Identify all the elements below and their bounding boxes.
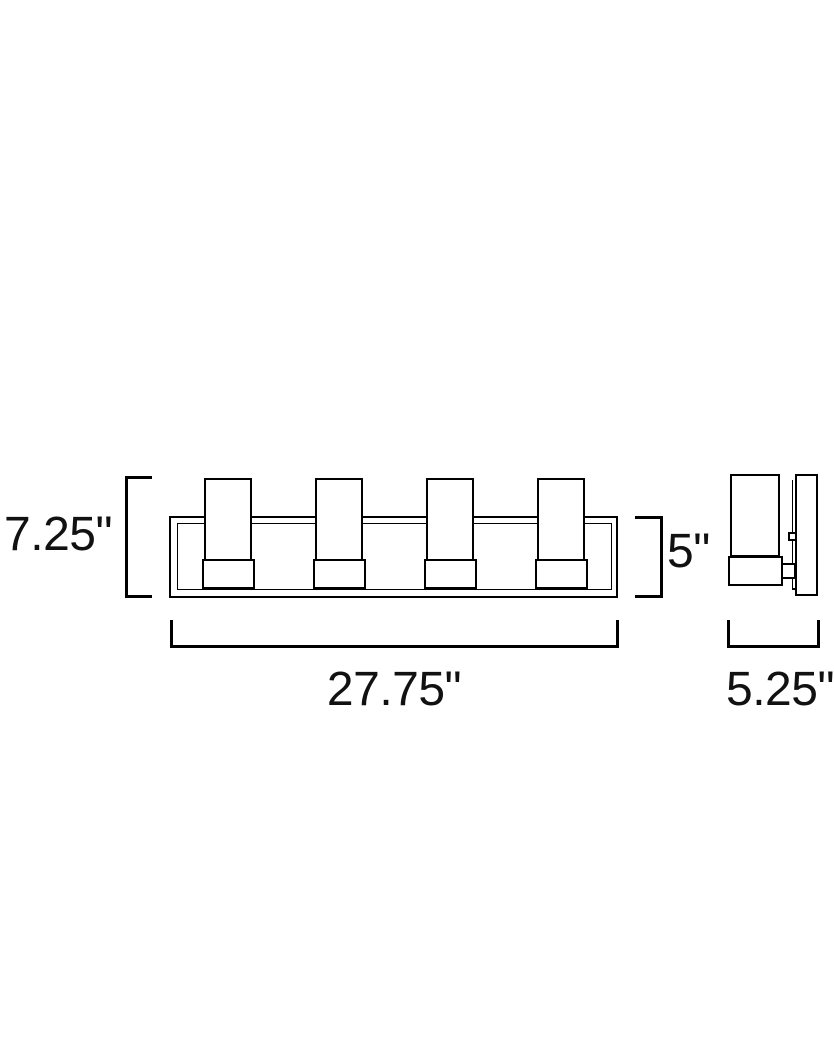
height-dimension-label: 7.25" xyxy=(0,511,112,559)
width-dimension-label: 27.75" xyxy=(294,666,494,714)
lamp-socket-2 xyxy=(313,559,366,589)
lamp-socket-3 xyxy=(424,559,477,589)
bracket-tick-top xyxy=(635,516,663,519)
lamp-shade-3 xyxy=(426,478,474,561)
bracket-vertical-line xyxy=(125,476,128,598)
bracket-tick-left xyxy=(170,620,173,648)
lamp-shade-2 xyxy=(315,478,363,561)
lamp-socket-4 xyxy=(535,559,588,589)
lamp-shade-1 xyxy=(204,478,252,561)
lamp-shade-4 xyxy=(537,478,585,561)
bracket-tick-top xyxy=(125,476,152,479)
depth-dimension-label: 5.25" xyxy=(707,666,834,714)
side-lamp-shade xyxy=(730,474,780,557)
bracket-tick-right xyxy=(616,620,619,648)
bracket-vertical-line xyxy=(660,516,663,598)
bracket-horizontal-line xyxy=(170,645,619,648)
bracket-tick-left xyxy=(727,620,730,648)
side-screw-nub xyxy=(788,532,797,541)
diagram-canvas: 7.25" 5" 27.75" 5.25" xyxy=(0,0,834,1043)
body-height-dimension-label: 5" xyxy=(667,528,710,576)
bracket-tick-bottom xyxy=(635,595,663,598)
lamp-socket-1 xyxy=(202,559,255,589)
side-lamp-socket xyxy=(728,556,783,586)
side-wallplate xyxy=(795,474,818,596)
bracket-horizontal-line xyxy=(727,645,820,648)
bracket-tick-right xyxy=(817,620,820,648)
bracket-tick-bottom xyxy=(125,595,152,598)
